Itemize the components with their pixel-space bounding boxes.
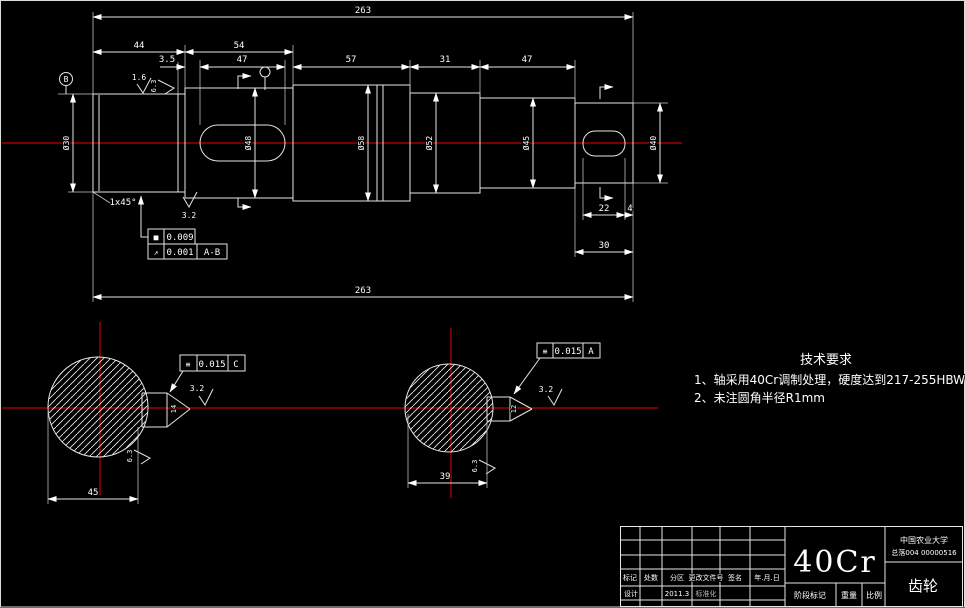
keyway-width-right: 12 xyxy=(510,405,518,413)
dim-54: 54 xyxy=(234,41,245,51)
shaft-cross-section-left xyxy=(48,357,148,457)
design-date: 2011.3 xyxy=(665,590,690,598)
dim-44: 44 xyxy=(134,41,145,51)
svg-text:6.3: 6.3 xyxy=(471,460,479,473)
dimension-texts: 263 44 54 3.5 47 57 31 47 263 22 4 30 Ø3… xyxy=(61,6,658,296)
org-name: 中国农业大学 xyxy=(900,535,948,545)
col-label-date: 年.月.日 xyxy=(754,573,779,582)
dia-label-right: Ø40 xyxy=(648,136,658,151)
roughness-3-2-shoulder: 3.2 xyxy=(182,192,197,220)
svg-text:C: C xyxy=(233,360,238,370)
dim-57: 57 xyxy=(346,55,357,65)
dim-47-keyway: 47 xyxy=(237,55,248,65)
center-hole-symbol xyxy=(260,67,270,90)
tolerance-frame-runout: ↗ 0.001 A-B xyxy=(141,196,227,259)
svg-text:A-B: A-B xyxy=(204,248,220,258)
tech-req-title: 技术要求 xyxy=(800,353,852,368)
cylindricity-icon: ■ xyxy=(154,233,159,242)
tolerance-frame-cylindricity: ■ 0.009 xyxy=(148,229,195,244)
standardization-label: 标准化 xyxy=(696,589,717,598)
roughness-3-2-left: 3.2 xyxy=(190,384,213,405)
tolerance-frame-symmetry-a: ≡ 0.015 A xyxy=(514,343,600,394)
title-block: 标记 处数 分区 更改文件号 签名 年.月.日 设计 2011.3 标准化 40… xyxy=(620,526,963,607)
stage-mark-label: 阶段标记 xyxy=(794,590,826,600)
chamfer-leader xyxy=(93,192,110,203)
part-name: 齿轮 xyxy=(908,577,938,595)
col-label-zone: 分区 xyxy=(670,573,684,582)
scale-label: 比例 xyxy=(866,590,882,600)
dia-label-1: Ø30 xyxy=(61,136,71,151)
svg-text:3.2: 3.2 xyxy=(539,385,554,394)
tech-req-line2: 2、未注圆角半径R1mm xyxy=(694,390,825,405)
org-sub: 总落004 00000516 xyxy=(891,548,957,557)
roughness-3-2-right: 3.2 xyxy=(539,385,562,405)
design-label: 设计 xyxy=(624,589,638,598)
col-label-sign: 签名 xyxy=(728,573,742,582)
svg-text:6.3: 6.3 xyxy=(150,80,158,93)
col-label-mark: 标记 xyxy=(623,573,637,582)
dia-label-3: Ø58 xyxy=(356,136,366,151)
section-view-left: 14 ≡ 0.015 C 3.2 6.3 45 xyxy=(48,355,245,504)
dim-31: 31 xyxy=(440,55,451,65)
roughness-1-6: 1.6 xyxy=(132,73,151,93)
weight-label: 重量 xyxy=(841,590,857,600)
runout-icon: ↗ xyxy=(154,248,159,257)
svg-text:1.6: 1.6 xyxy=(132,73,147,82)
dim-39: 39 xyxy=(440,472,451,482)
cad-drawing-canvas: 263 44 54 3.5 47 57 31 47 263 22 4 30 Ø3… xyxy=(0,0,965,608)
dim-total-bottom: 263 xyxy=(355,286,371,296)
datum-b-symbol: B xyxy=(60,73,73,95)
keyway-width-left: 14 xyxy=(170,405,178,413)
col-label-count: 处数 xyxy=(644,573,658,582)
shaft-cross-section-right xyxy=(405,364,493,452)
section-view-right: 12 ≡ 0.015 A 3.2 6.3 39 xyxy=(405,343,600,488)
dia-label-5: Ø45 xyxy=(521,136,531,151)
svg-text:6.3: 6.3 xyxy=(126,450,134,463)
svg-text:0.001: 0.001 xyxy=(166,248,193,258)
svg-text:3.2: 3.2 xyxy=(190,384,205,393)
datum-b-label: B xyxy=(64,75,69,84)
dim-4: 4 xyxy=(627,204,632,214)
dim-22: 22 xyxy=(599,204,610,214)
col-label-docno: 更改文件号 xyxy=(689,573,724,582)
svg-text:0.009: 0.009 xyxy=(166,233,193,243)
sheet-border xyxy=(1,1,965,608)
svg-text:3.2: 3.2 xyxy=(182,211,197,220)
dim-45: 45 xyxy=(88,488,99,498)
svg-text:0.015: 0.015 xyxy=(554,347,581,357)
org-cell: 中国农业大学 总落004 00000516 齿轮 xyxy=(885,535,962,595)
svg-text:0.015: 0.015 xyxy=(198,360,225,370)
dim-3-5: 3.5 xyxy=(159,55,175,65)
svg-text:A: A xyxy=(588,347,594,357)
revision-table: 标记 处数 分区 更改文件号 签名 年.月.日 设计 2011.3 标准化 xyxy=(620,526,785,606)
dia-label-2: Ø48 xyxy=(243,136,253,151)
tech-req-line1: 1、轴采用40Cr调制处理，硬度达到217-255HBW xyxy=(694,372,965,387)
dim-total-top: 263 xyxy=(355,6,371,16)
material-cell: 40Cr 阶段标记 重量 比例 xyxy=(785,526,885,606)
tolerance-frame-symmetry-c: ≡ 0.015 C xyxy=(170,355,245,392)
dia-label-4: Ø52 xyxy=(424,136,434,151)
technical-requirements: 技术要求 1、轴采用40Cr调制处理，硬度达到217-255HBW 2、未注圆角… xyxy=(694,353,965,405)
symmetry-icon: ≡ xyxy=(543,347,548,356)
keyway-profile-left xyxy=(142,393,190,427)
symmetry-icon: ≡ xyxy=(186,360,191,369)
material-label: 40Cr xyxy=(793,545,876,580)
roughness-6-3-rotated: 6.3 xyxy=(150,80,174,94)
roughness-side-right: 6.3 xyxy=(471,460,495,474)
dim-30: 30 xyxy=(599,241,610,251)
chamfer-note: 1x45° xyxy=(109,198,136,208)
dim-47b: 47 xyxy=(522,55,533,65)
